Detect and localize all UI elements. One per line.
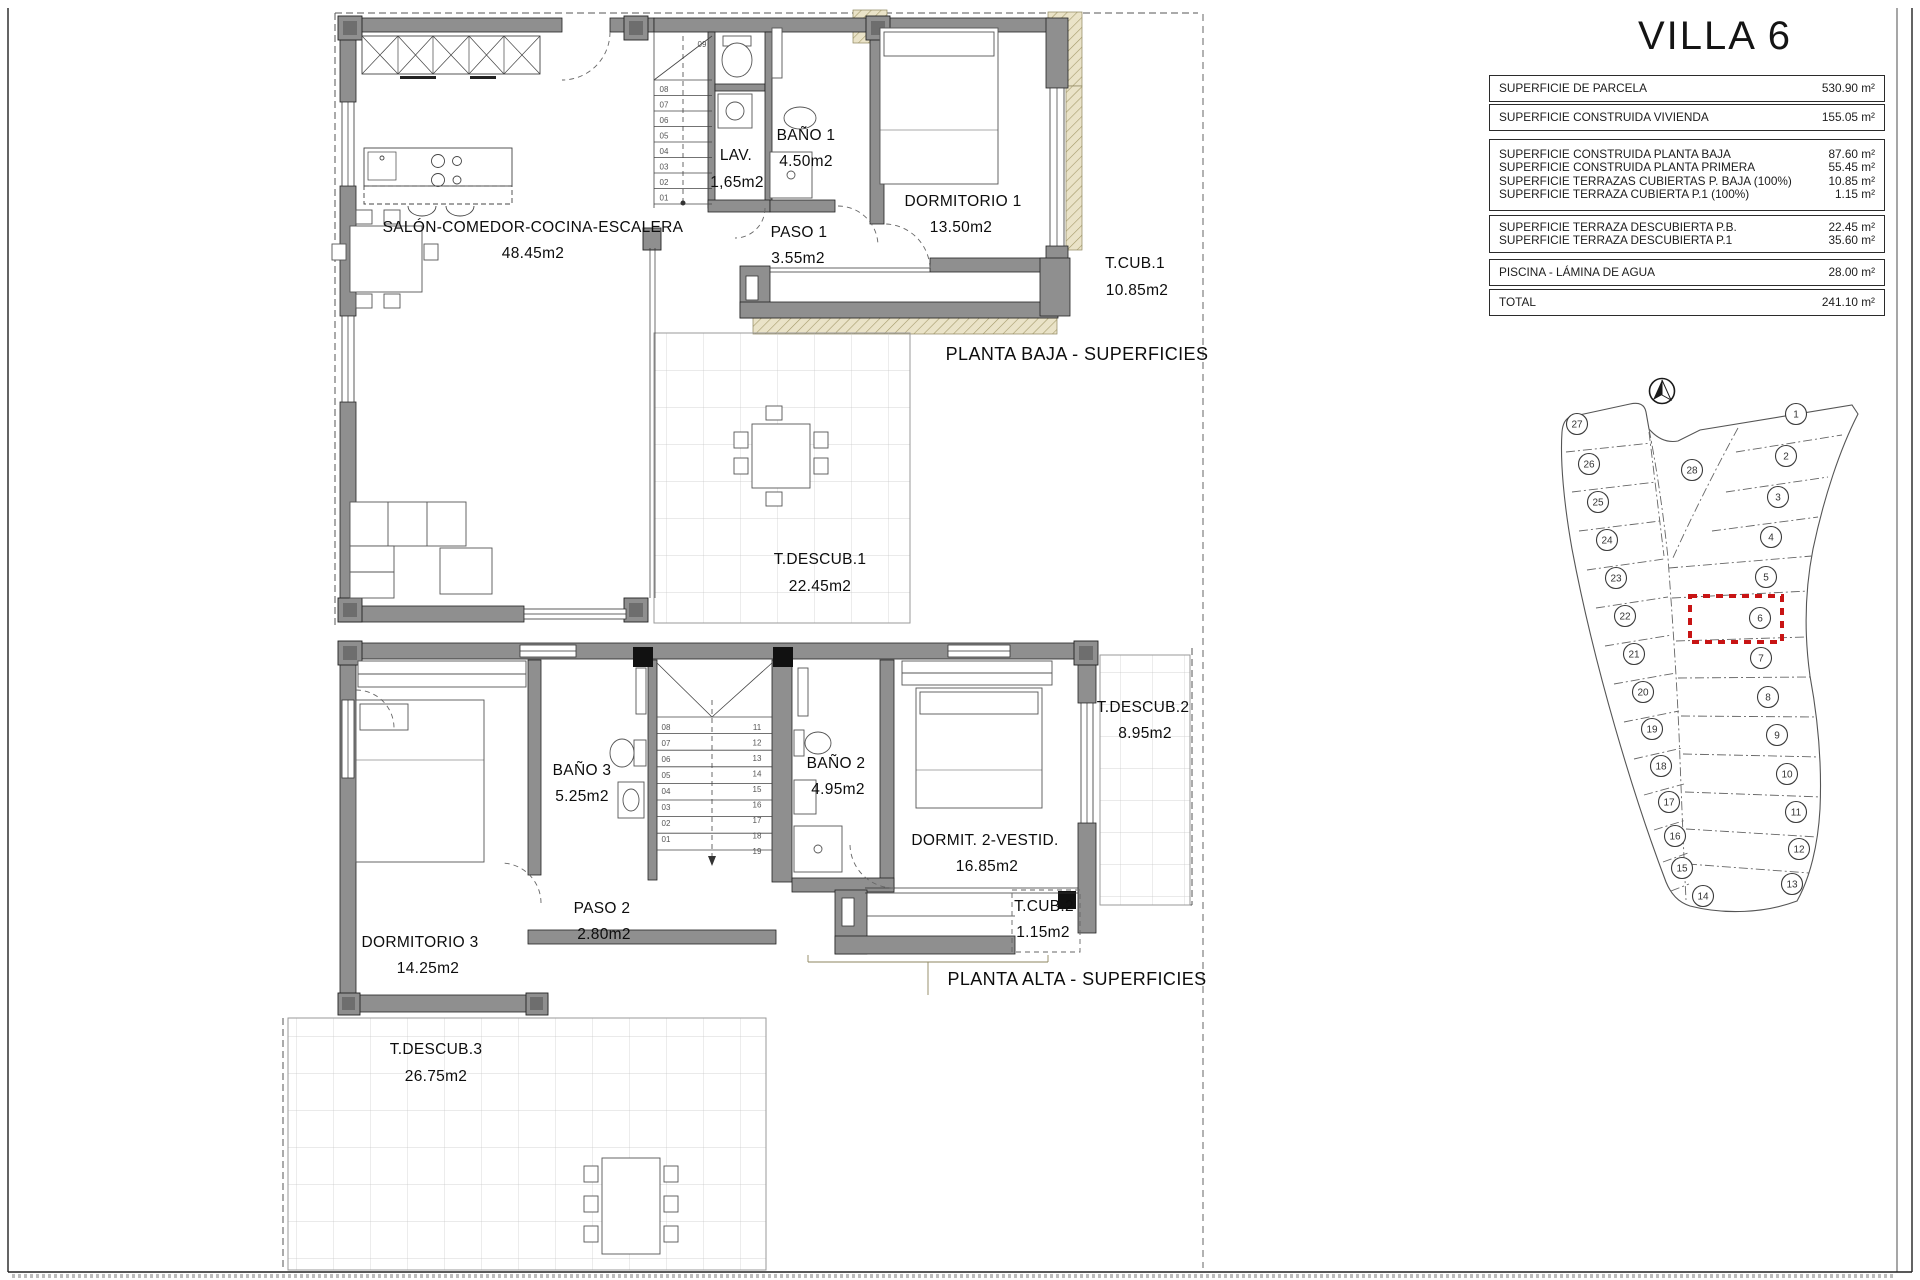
room-label-bano3: BAÑO 3 (553, 762, 612, 779)
room-area-salon: 48.45m2 (502, 245, 564, 262)
plot-number-highlighted: 6 (1757, 614, 1763, 625)
room-area-bano3: 5.25m2 (555, 788, 609, 805)
bed-dormitorio3 (356, 700, 484, 862)
stair-number: 02 (662, 819, 671, 828)
table-row-value: 87.60 m² (1828, 148, 1875, 161)
room-label-paso2: PASO 2 (574, 900, 631, 917)
table-row: SUPERFICIE TERRAZA DESCUBIERTA P.B. 22.4… (1499, 221, 1875, 234)
plot-number: 1 (1793, 410, 1799, 421)
plot-number: 13 (1786, 880, 1798, 891)
sheet-footer-microtext (12, 1274, 1896, 1278)
terrace-descub3-grid (288, 1018, 766, 1270)
plot-number: 12 (1793, 845, 1805, 856)
villa-title: VILLA 6 (1580, 14, 1850, 59)
room-label-dormitorio2: DORMIT. 2-VESTID. (911, 832, 1058, 849)
table-row-value: 10.85 m² (1828, 175, 1875, 188)
plot-number: 16 (1669, 832, 1681, 843)
stair-number: 18 (753, 832, 762, 841)
table-group-parcela: SUPERFICIE DE PARCELA 530.90 m² (1489, 75, 1885, 102)
room-label-bano2: BAÑO 2 (807, 755, 866, 772)
plot-number: 3 (1775, 493, 1781, 504)
bathroom3-fixtures (610, 668, 646, 818)
planta-baja-plan (332, 10, 1198, 628)
table-row-value: 241.10 m² (1822, 296, 1875, 309)
bed-dormitorio2 (916, 688, 1042, 808)
table-row: SUPERFICIE TERRAZA DESCUBIERTA P.1 35.60… (1499, 234, 1875, 247)
plot-number: 28 (1686, 466, 1698, 477)
toilet-room-fixtures (722, 36, 752, 77)
plot-number: 2 (1783, 452, 1789, 463)
plot-number: 21 (1628, 650, 1640, 661)
room-label-tcub1: T.CUB.1 (1105, 255, 1165, 272)
sofa (350, 502, 492, 598)
room-area-tdescub3: 26.75m2 (405, 1068, 467, 1085)
surface-table: SUPERFICIE DE PARCELA 530.90 m² SUPERFIC… (1489, 75, 1885, 316)
plot-number: 20 (1637, 688, 1649, 699)
table-row-label: SUPERFICIE CONSTRUIDA PLANTA PRIMERA (1499, 161, 1755, 174)
stair-number: 01 (662, 835, 671, 844)
bed-dormitorio1 (880, 28, 998, 184)
stair-number: 05 (662, 771, 671, 780)
stair-number: 03 (660, 163, 669, 172)
plot-number: 26 (1583, 460, 1595, 471)
site-outline (1561, 403, 1858, 911)
plot-number: 27 (1571, 420, 1583, 431)
room-label-tdescub1: T.DESCUB.1 (774, 551, 867, 568)
table-row-value: 530.90 m² (1822, 82, 1875, 95)
stair-number: 08 (660, 85, 669, 94)
stair-number: 19 (753, 847, 762, 856)
table-row: SUPERFICIE TERRAZAS CUBIERTAS P. BAJA (1… (1499, 175, 1875, 188)
room-area-dormitorio2: 16.85m2 (956, 858, 1018, 875)
plot-number: 24 (1601, 536, 1613, 547)
table-row: PISCINA - LÁMINA DE AGUA 28.00 m² (1499, 266, 1875, 279)
plot-number: 8 (1765, 693, 1771, 704)
bathroom1-fixtures (770, 28, 816, 198)
room-label-salon: SALÓN-COMEDOR-COCINA-ESCALERA (383, 219, 684, 236)
plot-number: 10 (1781, 770, 1793, 781)
stair-number: 17 (753, 816, 762, 825)
room-area-bano2: 4.95m2 (811, 781, 865, 798)
plot-number: 25 (1592, 498, 1604, 509)
stair-number: 16 (753, 801, 762, 810)
stair-number: 02 (660, 178, 669, 187)
wardrobe-dormitorio2 (902, 661, 1052, 685)
north-arrow-icon (1650, 379, 1675, 404)
room-area-lav: 1,65m2 (710, 174, 764, 191)
table-group-descubierta: SUPERFICIE TERRAZA DESCUBIERTA P.B. 22.4… (1489, 215, 1885, 254)
stair-number: 11 (753, 723, 762, 732)
table-row-value: 55.45 m² (1828, 161, 1875, 174)
table-row: SUPERFICIE CONSTRUIDA PLANTA BAJA 87.60 … (1499, 148, 1875, 161)
table-row-label: SUPERFICIE TERRAZA CUBIERTA P.1 (100%) (1499, 188, 1749, 201)
plot-number: 22 (1619, 612, 1631, 623)
plot-number: 23 (1610, 574, 1622, 585)
plot-number: 5 (1763, 573, 1769, 584)
plot-number: 18 (1655, 762, 1667, 773)
stair-number: 04 (660, 147, 669, 156)
plot-number: 9 (1774, 731, 1780, 742)
stair-number: 08 (662, 723, 671, 732)
table-group-total: TOTAL 241.10 m² (1489, 289, 1885, 316)
washing-machine (718, 94, 752, 128)
room-label-tdescub2: T.DESCUB.2 (1097, 699, 1190, 716)
table-row: TOTAL 241.10 m² (1499, 296, 1875, 309)
room-label-bano1: BAÑO 1 (777, 127, 836, 144)
table-row: SUPERFICIE CONSTRUIDA VIVIENDA 155.05 m² (1499, 111, 1875, 124)
caption-planta-baja: PLANTA BAJA - SUPERFICIES (946, 344, 1209, 364)
plot-number: 15 (1676, 864, 1688, 875)
table-row: SUPERFICIE DE PARCELA 530.90 m² (1499, 82, 1875, 95)
table-row-value: 1.15 m² (1835, 188, 1875, 201)
table-row-value: 155.05 m² (1822, 111, 1875, 124)
stair-number: 03 (662, 803, 671, 812)
stair-number: 12 (753, 739, 762, 748)
stair-number: 06 (662, 755, 671, 764)
plot-number: 19 (1646, 725, 1658, 736)
room-area-dormitorio3: 14.25m2 (397, 960, 459, 977)
kitchen-cabinets (362, 36, 540, 79)
room-label-lav: LAV. (720, 147, 752, 164)
room-label-paso1: PASO 1 (771, 224, 828, 241)
table-row-label: SUPERFICIE CONSTRUIDA VIVIENDA (1499, 111, 1709, 124)
stair-number: 07 (660, 101, 669, 110)
stair-number: 14 (753, 770, 762, 779)
stair-number: 09 (698, 40, 707, 49)
table-row-label: PISCINA - LÁMINA DE AGUA (1499, 266, 1655, 279)
stair-number: 04 (662, 787, 671, 796)
table-group-construida: SUPERFICIE CONSTRUIDA PLANTA BAJA 87.60 … (1489, 139, 1885, 211)
outdoor-table-2 (584, 1158, 678, 1254)
drawing-sheet: SALÓN-COMEDOR-COCINA-ESCALERA 48.45m2 LA… (0, 0, 1920, 1280)
table-row-value: 28.00 m² (1828, 266, 1875, 279)
stair-number: 01 (660, 194, 669, 203)
room-area-dormitorio1: 13.50m2 (930, 219, 992, 236)
caption-planta-alta: PLANTA ALTA - SUPERFICIES (947, 969, 1206, 989)
kitchen-island (364, 148, 512, 216)
table-row-label: SUPERFICIE TERRAZA DESCUBIERTA P.B. (1499, 221, 1737, 234)
plot-number-bottom: 14 (1693, 886, 1714, 907)
plot-number-center: 28 (1682, 460, 1703, 481)
stair-number: 06 (660, 116, 669, 125)
room-area-paso1: 3.55m2 (771, 250, 825, 267)
plot-number: 17 (1663, 798, 1675, 809)
plot-number: 11 (1791, 808, 1802, 819)
table-group-vivienda: SUPERFICIE CONSTRUIDA VIVIENDA 155.05 m² (1489, 104, 1885, 131)
plot-numbers-right: 1 2 3 4 5 6 7 8 9 10 11 12 13 (1750, 404, 1810, 895)
stair-number: 07 (662, 739, 671, 748)
table-row-label: SUPERFICIE TERRAZAS CUBIERTAS P. BAJA (1… (1499, 175, 1792, 188)
room-area-paso2: 2.80m2 (577, 926, 631, 943)
table-row-value: 35.60 m² (1828, 234, 1875, 247)
table-row-label: SUPERFICIE DE PARCELA (1499, 82, 1647, 95)
plot-number: 14 (1697, 892, 1709, 903)
coffee-table (440, 548, 492, 594)
plot-number: 4 (1768, 533, 1774, 544)
room-area-tdescub1: 22.45m2 (789, 578, 851, 595)
room-label-tdescub3: T.DESCUB.3 (390, 1041, 483, 1058)
wardrobe-dormitorio3 (358, 661, 526, 687)
table-row-value: 22.45 m² (1828, 221, 1875, 234)
plot-numbers-left: 27 26 25 24 23 22 21 20 19 18 17 16 15 (1567, 414, 1693, 879)
room-area-tcub2: 1.15m2 (1016, 924, 1070, 941)
room-label-tcub2: T.CUB.2 (1014, 898, 1074, 915)
planta-alta-plan (283, 641, 1192, 1270)
table-row-label: SUPERFICIE CONSTRUIDA PLANTA BAJA (1499, 148, 1731, 161)
room-area-bano1: 4.50m2 (779, 153, 833, 170)
room-area-tdescub2: 8.95m2 (1118, 725, 1172, 742)
room-area-tcub1: 10.85m2 (1106, 282, 1168, 299)
plot-number: 7 (1758, 654, 1764, 665)
site-plan: 27 26 25 24 23 22 21 20 19 18 17 16 15 (1561, 379, 1858, 912)
stair-number: 05 (660, 132, 669, 141)
room-label-dormitorio1: DORMITORIO 1 (905, 193, 1022, 210)
table-row: SUPERFICIE TERRAZA CUBIERTA P.1 (100%) 1… (1499, 188, 1875, 201)
stair-number: 13 (753, 754, 762, 763)
table-row: SUPERFICIE CONSTRUIDA PLANTA PRIMERA 55.… (1499, 161, 1875, 174)
room-label-dormitorio3: DORMITORIO 3 (362, 934, 479, 951)
table-row-label: SUPERFICIE TERRAZA DESCUBIERTA P.1 (1499, 234, 1732, 247)
table-group-piscina: PISCINA - LÁMINA DE AGUA 28.00 m² (1489, 259, 1885, 286)
terrace-descub2-grid (1100, 655, 1190, 905)
stair-number: 15 (753, 785, 762, 794)
table-row-label: TOTAL (1499, 296, 1536, 309)
